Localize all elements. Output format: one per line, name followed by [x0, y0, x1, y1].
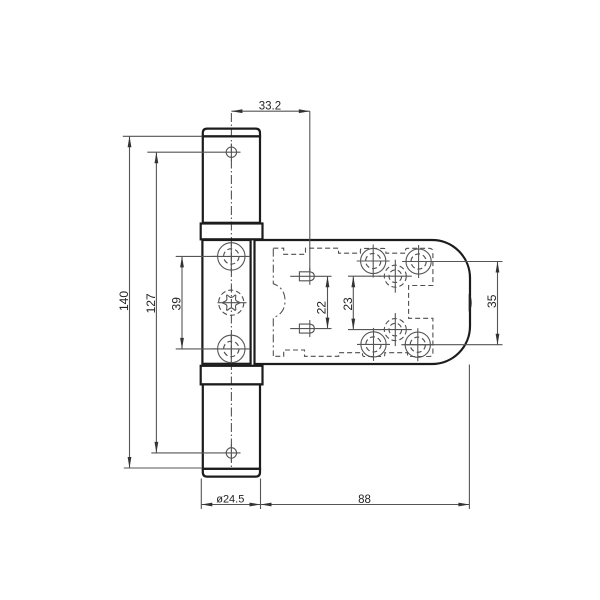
svg-text:35: 35	[485, 294, 499, 308]
svg-text:140: 140	[117, 291, 131, 311]
svg-text:23: 23	[341, 297, 355, 311]
svg-text:ø24.5: ø24.5	[216, 494, 244, 506]
svg-text:33.2: 33.2	[259, 100, 281, 112]
svg-text:88: 88	[358, 494, 371, 506]
svg-text:127: 127	[144, 293, 158, 313]
svg-text:22: 22	[315, 301, 329, 315]
svg-text:39: 39	[169, 297, 183, 311]
